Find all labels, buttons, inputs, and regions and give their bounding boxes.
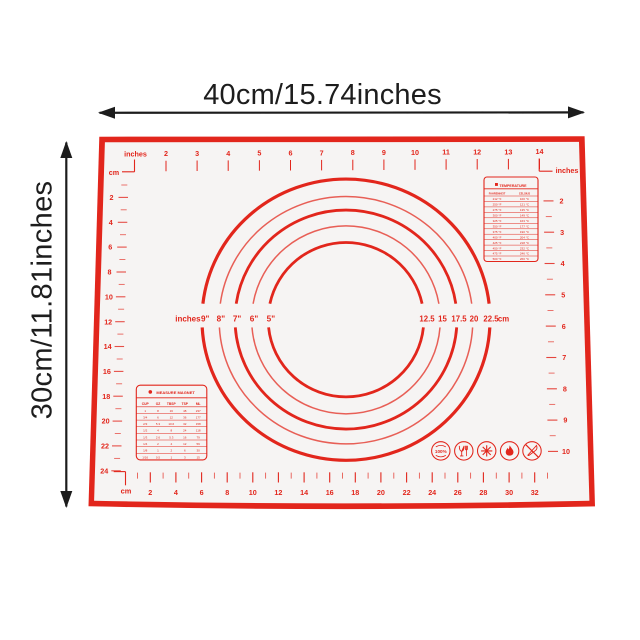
svg-text:cm: cm xyxy=(498,315,509,324)
svg-text:10: 10 xyxy=(411,148,419,157)
svg-text:18: 18 xyxy=(102,392,110,401)
svg-text:3/4: 3/4 xyxy=(143,416,148,420)
svg-text:6: 6 xyxy=(108,243,112,252)
svg-text:475 °F: 475 °F xyxy=(493,252,502,256)
svg-text:8": 8" xyxy=(217,315,226,324)
svg-text:12: 12 xyxy=(473,148,481,157)
svg-text:22: 22 xyxy=(101,442,109,451)
svg-text:11: 11 xyxy=(442,148,450,157)
svg-text:100 °C: 100 °C xyxy=(520,197,530,201)
svg-text:79: 79 xyxy=(197,435,201,439)
svg-text:32: 32 xyxy=(183,422,187,426)
svg-text:28: 28 xyxy=(479,488,487,497)
svg-text:9": 9" xyxy=(201,315,210,324)
svg-text:inches: inches xyxy=(124,149,147,158)
svg-text:18: 18 xyxy=(351,488,359,497)
svg-text:1/8: 1/8 xyxy=(143,449,148,453)
svg-text:12: 12 xyxy=(274,488,282,497)
svg-text:8: 8 xyxy=(563,384,567,393)
svg-text:14: 14 xyxy=(300,488,308,497)
svg-text:22.5: 22.5 xyxy=(483,315,499,324)
svg-text:2: 2 xyxy=(560,197,564,206)
svg-text:20: 20 xyxy=(377,488,385,497)
svg-text:10: 10 xyxy=(105,292,113,301)
svg-text:14: 14 xyxy=(536,147,544,156)
svg-text:6: 6 xyxy=(562,322,566,331)
svg-text:7: 7 xyxy=(320,148,324,157)
svg-text:TSP: TSP xyxy=(182,402,189,406)
svg-text:cm: cm xyxy=(109,168,119,177)
svg-text:15: 15 xyxy=(197,455,201,459)
svg-text:30: 30 xyxy=(505,488,513,497)
svg-text:6: 6 xyxy=(289,149,293,158)
svg-text:17.5: 17.5 xyxy=(451,315,467,324)
svg-text:10: 10 xyxy=(562,447,570,456)
svg-text:5.3: 5.3 xyxy=(156,422,161,426)
svg-text:13: 13 xyxy=(504,147,512,156)
svg-text:CELSIUS: CELSIUS xyxy=(519,192,531,196)
svg-text:8: 8 xyxy=(108,268,112,277)
svg-text:2: 2 xyxy=(164,149,168,158)
svg-text:OZ: OZ xyxy=(156,402,161,406)
svg-text:246 °C: 246 °C xyxy=(520,252,530,256)
svg-text:15: 15 xyxy=(438,315,447,324)
svg-text:7: 7 xyxy=(562,353,566,362)
svg-text:10.6: 10.6 xyxy=(168,422,174,426)
svg-text:300 °F: 300 °F xyxy=(493,214,502,218)
svg-text:2: 2 xyxy=(148,488,152,497)
svg-text:135 °C: 135 °C xyxy=(520,208,530,212)
svg-text:22: 22 xyxy=(403,488,411,497)
svg-text:ML: ML xyxy=(196,402,201,406)
svg-text:450 °F: 450 °F xyxy=(493,246,502,250)
svg-text:4: 4 xyxy=(109,218,113,227)
svg-text:2/3: 2/3 xyxy=(143,422,148,426)
svg-text:TEMPERATURE: TEMPERATURE xyxy=(499,184,527,188)
svg-text:158: 158 xyxy=(196,422,201,426)
svg-text:177 °C: 177 °C xyxy=(520,224,530,228)
svg-text:4: 4 xyxy=(561,259,565,268)
svg-text:26: 26 xyxy=(454,488,462,497)
svg-text:16: 16 xyxy=(326,488,334,497)
svg-text:32: 32 xyxy=(531,488,539,497)
svg-text:121 °C: 121 °C xyxy=(520,203,530,207)
svg-text:MEASURE MAGNET: MEASURE MAGNET xyxy=(156,390,195,395)
svg-text:4: 4 xyxy=(174,488,178,497)
svg-text:400 °F: 400 °F xyxy=(493,235,502,239)
svg-text:5": 5" xyxy=(267,315,276,324)
svg-text:5: 5 xyxy=(257,149,261,158)
svg-text:1/16: 1/16 xyxy=(142,455,148,459)
svg-text:2: 2 xyxy=(110,193,114,202)
svg-text:16: 16 xyxy=(170,409,174,413)
svg-text:190 °C: 190 °C xyxy=(520,230,530,234)
svg-text:149 °C: 149 °C xyxy=(520,214,530,218)
svg-text:0.5: 0.5 xyxy=(156,455,161,459)
svg-text:500 °F: 500 °F xyxy=(493,257,502,261)
svg-text:232 °C: 232 °C xyxy=(520,246,530,250)
svg-text:218 °C: 218 °C xyxy=(520,241,530,245)
svg-text:212 °F: 212 °F xyxy=(493,197,502,201)
svg-text:59: 59 xyxy=(197,442,201,446)
svg-text:16: 16 xyxy=(183,435,187,439)
svg-text:3: 3 xyxy=(195,149,199,158)
svg-text:inches: inches xyxy=(556,166,579,175)
svg-text:14: 14 xyxy=(104,342,112,351)
svg-text:FAHRENHEIT: FAHRENHEIT xyxy=(489,192,506,196)
svg-text:5.3: 5.3 xyxy=(169,435,174,439)
svg-text:237: 237 xyxy=(196,409,201,413)
svg-text:1/4: 1/4 xyxy=(143,442,148,446)
svg-text:3: 3 xyxy=(560,228,564,237)
svg-text:24: 24 xyxy=(183,429,187,433)
svg-text:24: 24 xyxy=(428,488,436,497)
svg-text:CUP: CUP xyxy=(142,402,150,406)
svg-text:9: 9 xyxy=(382,148,386,157)
svg-text:8: 8 xyxy=(351,148,355,157)
svg-text:6: 6 xyxy=(200,488,204,497)
svg-text:260 °C: 260 °C xyxy=(520,257,530,261)
svg-text:7": 7" xyxy=(233,315,242,324)
svg-text:8: 8 xyxy=(225,488,229,497)
svg-text:10: 10 xyxy=(249,488,257,497)
svg-text:TBSP: TBSP xyxy=(167,402,177,406)
svg-text:24: 24 xyxy=(100,466,108,475)
svg-text:425 °F: 425 °F xyxy=(493,241,502,245)
svg-text:177: 177 xyxy=(196,416,201,420)
svg-text:cm: cm xyxy=(121,486,132,495)
svg-text:30: 30 xyxy=(197,449,201,453)
svg-text:250 °F: 250 °F xyxy=(493,203,502,207)
svg-text:16: 16 xyxy=(103,367,111,376)
svg-text:48: 48 xyxy=(183,409,187,413)
svg-text:20: 20 xyxy=(470,315,479,324)
svg-text:1/2: 1/2 xyxy=(143,429,148,433)
svg-text:2.6: 2.6 xyxy=(156,435,161,439)
svg-text:12.5: 12.5 xyxy=(419,315,435,324)
svg-text:12: 12 xyxy=(183,442,187,446)
svg-text:inches: inches xyxy=(175,315,201,324)
svg-text:20: 20 xyxy=(102,417,110,426)
svg-text:100%: 100% xyxy=(435,449,447,454)
svg-text:163 °C: 163 °C xyxy=(520,219,530,223)
svg-text:118: 118 xyxy=(196,429,201,433)
svg-text:12: 12 xyxy=(104,317,112,326)
svg-text:12: 12 xyxy=(170,416,174,420)
svg-text:6": 6" xyxy=(250,315,259,324)
svg-text:1/3: 1/3 xyxy=(143,435,148,439)
svg-text:325 °F: 325 °F xyxy=(493,219,502,223)
svg-text:275 °F: 275 °F xyxy=(493,208,502,212)
svg-text:350 °F: 350 °F xyxy=(493,224,502,228)
svg-text:5: 5 xyxy=(561,290,565,299)
svg-text:36: 36 xyxy=(183,416,187,420)
svg-text:204 °C: 204 °C xyxy=(520,235,530,239)
svg-text:4: 4 xyxy=(226,149,230,158)
svg-text:375 °F: 375 °F xyxy=(493,230,502,234)
svg-text:9: 9 xyxy=(563,416,567,425)
